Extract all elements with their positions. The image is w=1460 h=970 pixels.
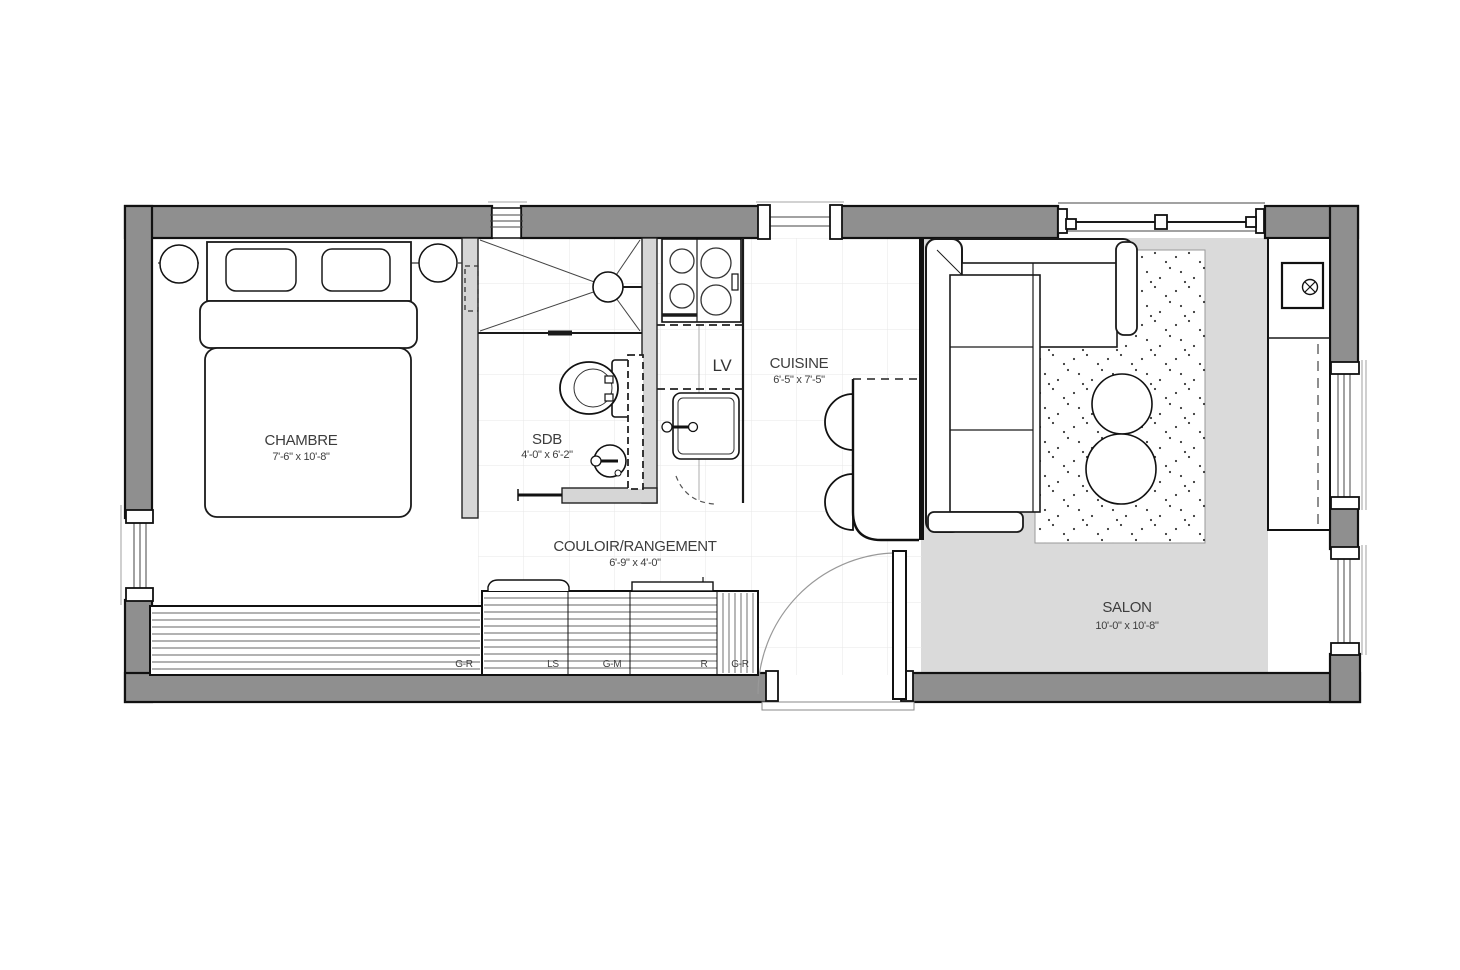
room-dims-cuisine: 6'-5" x 7'-5"	[773, 374, 825, 386]
stove-cooktop	[662, 239, 741, 322]
laundry-top-item	[488, 580, 569, 591]
storage-label-ls: LS	[547, 659, 559, 670]
window-left-bedroom	[121, 505, 153, 605]
pillow	[322, 249, 390, 291]
wall-left-upper	[125, 206, 152, 518]
flue-symbol-icon	[1303, 280, 1318, 295]
room-dims-salon: 10'-0" x 10'-8"	[1095, 620, 1159, 632]
dishwasher-label: LV	[713, 356, 733, 375]
faucet-knob	[662, 422, 672, 432]
blanket-fold	[200, 301, 417, 348]
window-top-salon	[1058, 203, 1265, 233]
window-right-lower	[1331, 545, 1366, 655]
door-jamb-left	[766, 671, 778, 701]
kitchen-sink	[662, 393, 739, 459]
storage-label-gr-1: G-R	[455, 659, 473, 670]
wall-right-mid-post	[1330, 508, 1358, 549]
window-top-small	[488, 202, 527, 238]
wall-right-upper	[1330, 206, 1358, 364]
storage-label-gm: G-M	[603, 659, 622, 670]
wall-bath-kitchen	[642, 238, 657, 503]
nightstand	[160, 245, 198, 283]
room-dims-sdb: 4'-0" x 6'-2"	[521, 449, 573, 461]
side-table	[1092, 374, 1152, 434]
side-table	[1086, 434, 1156, 504]
wall-top-1	[125, 206, 492, 238]
bath-storage-cabinet	[628, 355, 643, 489]
wall-bottom-right	[908, 673, 1360, 702]
wall-bottom-left	[125, 673, 768, 702]
knee-wall	[919, 238, 924, 540]
pillow	[226, 249, 296, 291]
door-threshold	[762, 702, 914, 710]
room-label-couloir: COULOIR/RANGEMENT	[553, 538, 716, 555]
toilet	[560, 360, 637, 417]
storage-label-gr-2: G-R	[731, 659, 749, 670]
storage-label-r: R	[701, 659, 708, 670]
wall-bath-bottom	[562, 488, 657, 503]
bedroom-furniture	[158, 242, 462, 517]
closet-section	[150, 606, 482, 675]
wall-top-3	[838, 206, 1058, 238]
room-dims-couloir: 6'-9" x 4'-0"	[609, 557, 661, 569]
nightstand	[419, 244, 457, 282]
storage-wall	[150, 577, 758, 675]
sofa-armrest	[1116, 242, 1137, 335]
bed	[200, 242, 417, 517]
room-label-salon: SALON	[1102, 599, 1151, 616]
shelf-top-item	[632, 582, 713, 591]
door-leaf	[893, 551, 906, 699]
room-dims-chambre: 7'-6" x 10'-8"	[272, 451, 330, 463]
room-label-chambre: CHAMBRE	[265, 432, 338, 449]
faucet-knob	[591, 456, 601, 466]
wall-right-corner	[1330, 654, 1360, 702]
floor-plan-page: CHAMBRE 7'-6" x 10'-8" SDB 4'-0" x 6'-2"…	[0, 0, 1460, 970]
floor-plan-drawing: CHAMBRE 7'-6" x 10'-8" SDB 4'-0" x 6'-2"…	[0, 0, 1460, 970]
room-label-sdb: SDB	[532, 431, 562, 448]
window-top-kitchen	[756, 202, 844, 239]
window-right-upper	[1331, 360, 1366, 510]
wall-top-2	[521, 206, 762, 238]
shower-head	[593, 272, 623, 302]
sofa-armrest	[928, 512, 1023, 532]
stove-control	[732, 274, 738, 290]
media-console	[1268, 238, 1330, 530]
room-label-cuisine: CUISINE	[770, 355, 829, 372]
